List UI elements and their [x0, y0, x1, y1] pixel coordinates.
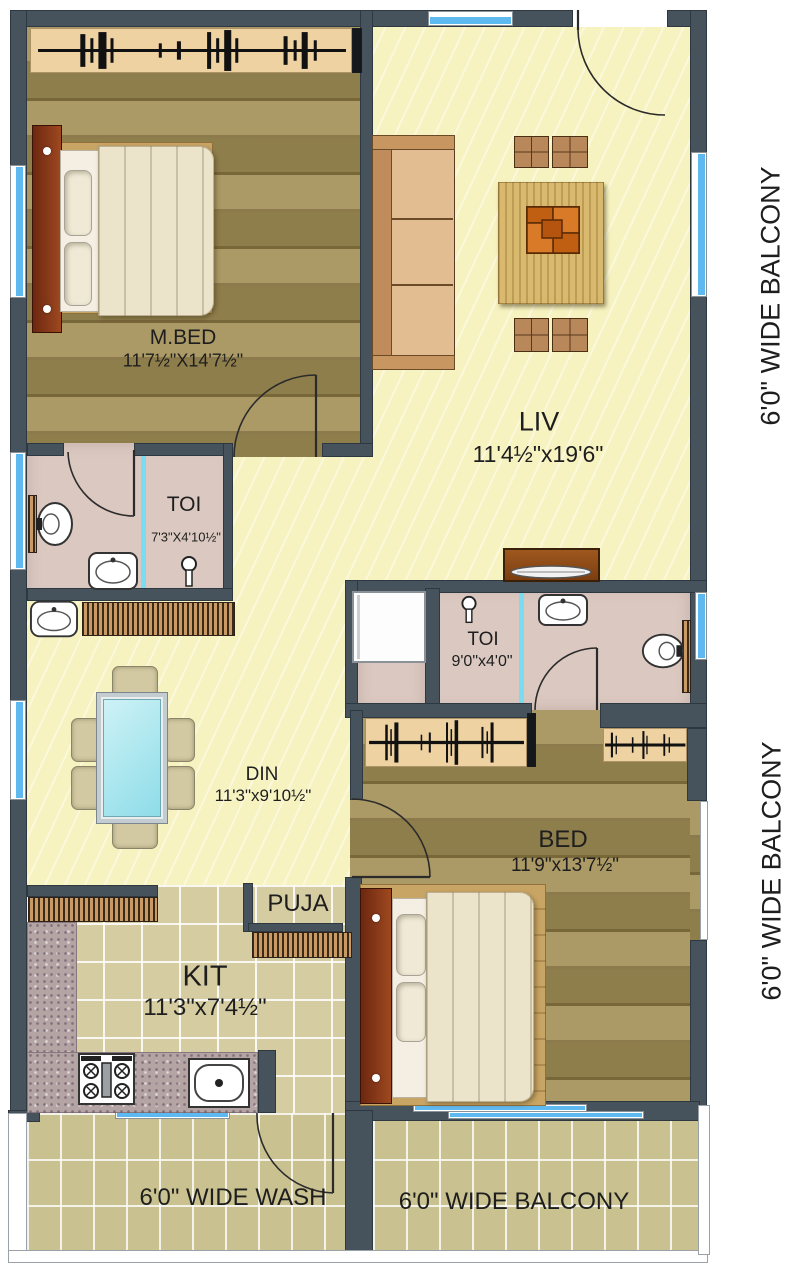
liv-top-window: [428, 11, 513, 26]
pillow: [396, 982, 426, 1042]
puja-label: PUJA: [267, 890, 328, 918]
pillow: [64, 170, 92, 236]
wardrobe-hatch-icon: [30, 28, 352, 73]
din-left-window: [10, 700, 26, 800]
wash-floor: [27, 1113, 347, 1252]
wash-balcony-pillar: [345, 1110, 373, 1253]
toi2-label: TOI: [467, 629, 498, 651]
toi1-left-window: [10, 452, 26, 570]
ottoman: [552, 318, 588, 352]
bed-label: BED: [538, 826, 587, 854]
bed-balcony-door-edge: [700, 801, 708, 940]
toi1-size: 7'3"X4'10½": [151, 531, 221, 546]
pillow: [64, 242, 92, 306]
balcony-floor: [373, 1113, 698, 1252]
bed-right-recess-wall: [687, 728, 707, 801]
toi2-bottom-wall-a: [345, 703, 532, 718]
coffee-table-icon: [526, 206, 580, 254]
dining-chair: [164, 766, 195, 810]
balcony-parapet-right: [698, 1105, 710, 1255]
sofa-backrest: [372, 135, 392, 370]
sofa: [372, 135, 455, 370]
wash-counter-slats: [82, 602, 235, 636]
toi2-partition: [519, 593, 524, 703]
toi1-partition: [141, 456, 146, 588]
toi1-top-wall-b: [134, 443, 233, 456]
tv-icon: [503, 548, 600, 582]
wardrobe-hatch-icon: [603, 728, 687, 762]
ottoman: [514, 318, 549, 352]
toi2-size: 9'0"x4'0": [451, 653, 512, 671]
bedroom2-balcony-opening: [690, 801, 700, 940]
toilet-icon: [642, 628, 684, 674]
mbed-headboard: [32, 125, 62, 333]
mbed-wardrobe-cap: [352, 28, 362, 73]
liv-size: 11'4½"x19'6": [473, 441, 604, 467]
basin-icon: [538, 594, 588, 626]
liv-label: LIV: [519, 406, 560, 437]
bed2-headboard: [360, 888, 392, 1104]
sofa-armrest-bottom: [372, 355, 455, 370]
din-size: 11'3"x9'10½": [215, 786, 312, 806]
bottom-parapet: [8, 1250, 708, 1263]
ottoman: [552, 136, 588, 168]
bed-left-wall-upper: [350, 710, 363, 800]
floor-plan: M.BED 11'7½"X14'7½" LIV 11'4½"x19'6" TOI…: [0, 0, 795, 1280]
mbed-left-window: [10, 165, 26, 298]
bed-size: 11'9"x13'7½": [511, 855, 619, 877]
ottoman: [514, 136, 549, 168]
stove-icon: [78, 1053, 135, 1105]
tv-unit: [503, 548, 600, 582]
mbed-bottom-stub: [322, 443, 373, 457]
dining-table: [96, 692, 168, 824]
balcony-right-bottom-label: 6'0" WIDE BALCONY: [757, 741, 788, 1000]
kitchen-counter-slats: [28, 897, 158, 922]
basin-icon: [88, 552, 138, 590]
din-label: DIN: [246, 764, 279, 786]
right-wall: [690, 10, 707, 801]
balcony-right-top-label: 6'0" WIDE BALCONY: [756, 166, 787, 425]
balcony-bottom-label: 6'0" WIDE BALCONY: [399, 1188, 630, 1216]
toi2-right-window: [695, 592, 707, 660]
puja-slats: [252, 932, 352, 958]
kit-counter-end-wall: [258, 1050, 276, 1113]
puja-ledge: [248, 923, 343, 932]
bed-wardrobe-a: [365, 718, 527, 767]
right-wall-lower: [690, 940, 707, 1113]
utility-shaft: [352, 591, 426, 663]
bed-wardrobe-b: [603, 728, 687, 762]
wardrobe-hatch-icon: [365, 718, 527, 767]
mbed-wardrobe: [30, 28, 352, 73]
toilet-icon: [36, 500, 76, 548]
kit-label: KIT: [182, 960, 227, 993]
wash-parapet-left: [8, 1113, 27, 1259]
mbed-blanket: [98, 146, 214, 316]
mbed-label: M.BED: [150, 326, 217, 350]
bed2-blanket: [426, 892, 534, 1102]
basin-icon: [30, 600, 78, 638]
toi2-bottom-wall-b: [600, 703, 707, 728]
pillow: [396, 914, 426, 976]
shower-icon: [458, 594, 480, 628]
toi1-top-wall-a: [27, 443, 64, 456]
toi1-right-wall: [223, 443, 233, 601]
mbed-size: 11'7½"X14'7½": [123, 351, 243, 372]
sink-icon: [188, 1058, 250, 1108]
kit-din-wall: [27, 885, 158, 897]
sofa-armrest-top: [372, 135, 455, 150]
liv-right-window: [691, 152, 707, 297]
toi1-label: TOI: [167, 493, 202, 517]
wash-label: 6'0" WIDE WASH: [140, 1184, 327, 1212]
toi2-left-wall: [425, 588, 440, 710]
dining-chair: [164, 718, 195, 762]
bed-balcony-slider-b: [448, 1111, 644, 1119]
shower-icon: [178, 556, 200, 592]
bed-wardrobe-a-cap: [527, 713, 536, 767]
kit-size: 11'3"x7'4½": [143, 994, 266, 1022]
